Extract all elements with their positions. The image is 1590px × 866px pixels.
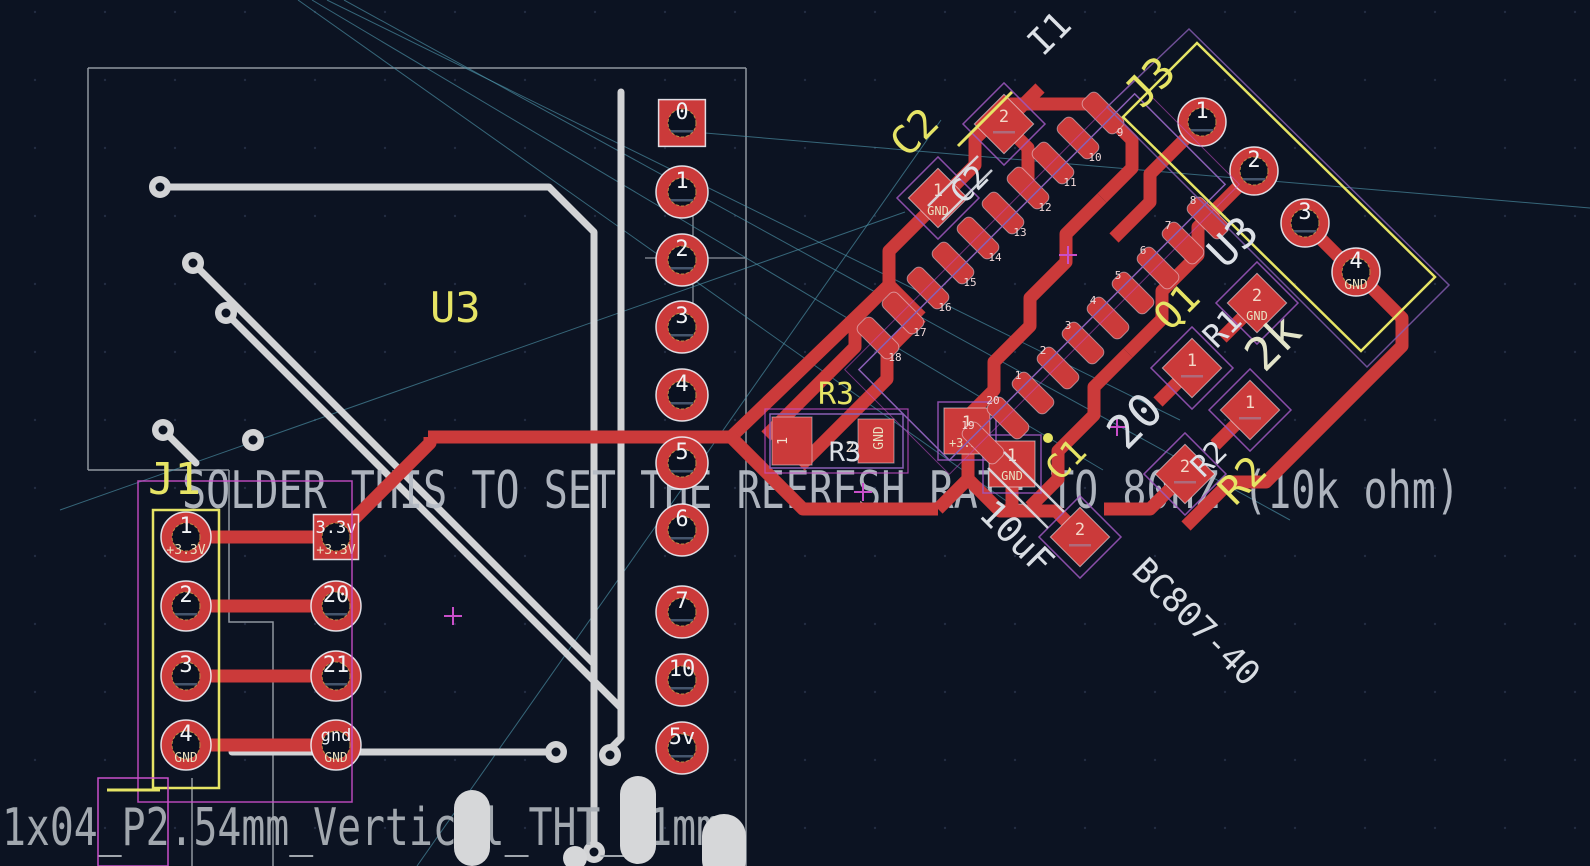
pad-net-label: +3.3V (166, 543, 205, 558)
pad-net-micro-text (671, 402, 693, 405)
silk-dot (1043, 433, 1053, 443)
pad-through-hole-5v[interactable]: 5v (656, 722, 708, 774)
pad-through-hole-4[interactable]: 4GND (1332, 248, 1380, 296)
pad-net-label: +3.3V (316, 543, 355, 558)
pad-number: 5 (675, 440, 688, 465)
pad-number: 1 (1015, 369, 1022, 382)
pad-number: 1 (1195, 99, 1208, 124)
pad-net-label: GND (174, 751, 198, 766)
via-hole (222, 309, 231, 318)
pad-number: 1 (179, 514, 192, 539)
pad-through-hole-7[interactable]: 7 (656, 586, 708, 638)
pad-net-label: GND (1344, 278, 1368, 293)
pad-net-micro-text (1069, 544, 1091, 547)
pad-number: 2 (179, 583, 192, 608)
pad-through-hole-10[interactable]: 10 (656, 654, 708, 706)
pad-number: gnd (321, 726, 352, 746)
pad-through-hole-gnd[interactable]: gndGND (311, 720, 361, 770)
pad-net-label: GND (872, 426, 887, 450)
r3-ref-label[interactable]: R3 (818, 377, 854, 412)
footprint-name-text[interactable]: 1x04_P2.54mm_Vertical_THT_D1mm (2, 798, 720, 858)
pad-net-micro-text (671, 619, 693, 622)
pad-number: 17 (913, 326, 926, 339)
pad-number: 6 (675, 507, 688, 532)
pad-number: 18 (888, 351, 901, 364)
pad-through-hole-1[interactable]: 1+3.3V (161, 512, 211, 562)
pad-number: 15 (963, 276, 976, 289)
pad-through-hole-4[interactable]: 4 (656, 369, 708, 421)
pad-number: 7 (675, 589, 688, 614)
pad-net-micro-text (671, 334, 693, 337)
pad-through-hole-2[interactable]: 2 (161, 581, 211, 631)
pad-through-hole-5[interactable]: 5 (656, 437, 708, 489)
pad-net-micro-text (1191, 129, 1213, 132)
pad-number: 1 (776, 437, 791, 445)
pad-net-label: GND (1001, 469, 1023, 483)
j1-ref-label[interactable]: J1 (148, 454, 201, 505)
pad-number: 10 (669, 657, 696, 682)
pad-number: 20 (986, 394, 999, 407)
pad-through-hole-20[interactable]: 20 (311, 581, 361, 631)
pad-through-hole-21[interactable]: 21 (311, 651, 361, 701)
pad-number: 1 (675, 169, 688, 194)
pad-through-hole-6[interactable]: 6 (656, 504, 708, 556)
via-hole (189, 259, 198, 268)
pad-net-micro-text (671, 470, 693, 473)
pad-number: 12 (1038, 201, 1051, 214)
pad-number: 4 (1349, 249, 1362, 274)
pad-through-hole-2[interactable]: 2 (1230, 147, 1278, 195)
pad-number: 11 (1063, 176, 1076, 189)
pad-number: 19 (961, 419, 974, 432)
via-hole (606, 751, 615, 760)
pad-number: 2 (1075, 520, 1085, 540)
pad-net-micro-text (1181, 375, 1203, 378)
pad-number: 4 (179, 722, 192, 747)
pad-number: 7 (1165, 219, 1172, 232)
pad-number: 14 (988, 251, 1002, 264)
pad-number: 0 (675, 100, 688, 125)
pad-net-micro-text (671, 199, 693, 202)
pcb-drawing[interactable]: SOLDER THIS TO SET THE REFRESH RATE TO 8… (0, 0, 1590, 866)
pad-back-oval[interactable] (620, 776, 656, 864)
pad-number: 21 (323, 653, 350, 678)
pad-net-micro-text (1294, 230, 1316, 233)
pad-number: 16 (938, 301, 951, 314)
pad-number: 4 (1090, 294, 1097, 307)
pad-through-hole-1[interactable]: 1 (656, 166, 708, 218)
pad-number: 9 (1117, 126, 1124, 139)
pad-net-micro-text (671, 755, 693, 758)
pad-net-label: GND (324, 751, 348, 766)
pad-net-micro-text (175, 683, 197, 686)
pcb-editor-canvas[interactable]: SOLDER THIS TO SET THE REFRESH RATE TO 8… (0, 0, 1590, 866)
pad-number: 1 (1245, 393, 1255, 413)
pad-number: 10 (1088, 151, 1101, 164)
pad-number: 2 (1040, 344, 1047, 357)
pad-number: 1 (1187, 351, 1197, 371)
pad-number: 2 (1247, 148, 1260, 173)
pad-number: 20 (323, 583, 350, 608)
pad-number: 3 (1065, 319, 1072, 332)
pad-net-micro-text (671, 537, 693, 540)
pad-number: 2 (999, 107, 1009, 127)
pad-net-micro-text (1239, 417, 1261, 420)
pad-net-micro-text (175, 613, 197, 616)
pad-net-micro-text (325, 683, 347, 686)
via-hole (156, 183, 165, 192)
pad-number: 3.3v (316, 518, 357, 538)
pad-net-micro-text (671, 687, 693, 690)
pad-net-micro-text (1243, 178, 1265, 181)
pad-number: 5 (1115, 269, 1122, 282)
pad-net-micro-text (325, 613, 347, 616)
pad-number: 5v (669, 725, 696, 750)
r3-fab-label[interactable]: R3 (829, 437, 862, 468)
pad-number: 6 (1140, 244, 1147, 257)
pad-through-hole-3[interactable]: 3 (161, 651, 211, 701)
module-ref-label[interactable]: U3 (430, 283, 481, 332)
pad-number: 2 (1252, 286, 1262, 306)
via-hole (249, 436, 258, 445)
pad-back-oval[interactable] (454, 790, 490, 866)
pad-number: 4 (675, 372, 688, 397)
pad-through-hole-1[interactable]: 1 (1178, 98, 1226, 146)
pad-net-micro-text (1174, 481, 1196, 484)
pad-number: 3 (179, 653, 192, 678)
pad-through-hole-3[interactable]: 3 (1281, 199, 1329, 247)
pad-net-micro-text (671, 130, 693, 133)
pad-through-hole-2[interactable]: 2 (656, 234, 708, 286)
pad-back-oval[interactable] (702, 814, 746, 866)
pad-number: 2 (675, 237, 688, 262)
pad-through-hole-4[interactable]: 4GND (161, 720, 211, 770)
pad-number: 13 (1013, 226, 1026, 239)
via-hole (552, 748, 561, 757)
pad-net-micro-text (671, 267, 693, 270)
pad-number: 3 (1298, 200, 1311, 225)
pad-through-hole-0[interactable]: 0 (659, 100, 706, 147)
via-hole (159, 426, 168, 435)
pad-through-hole-3[interactable]: 3 (656, 301, 708, 353)
pad-net-micro-text (993, 131, 1015, 134)
pad-number: 3 (675, 304, 688, 329)
